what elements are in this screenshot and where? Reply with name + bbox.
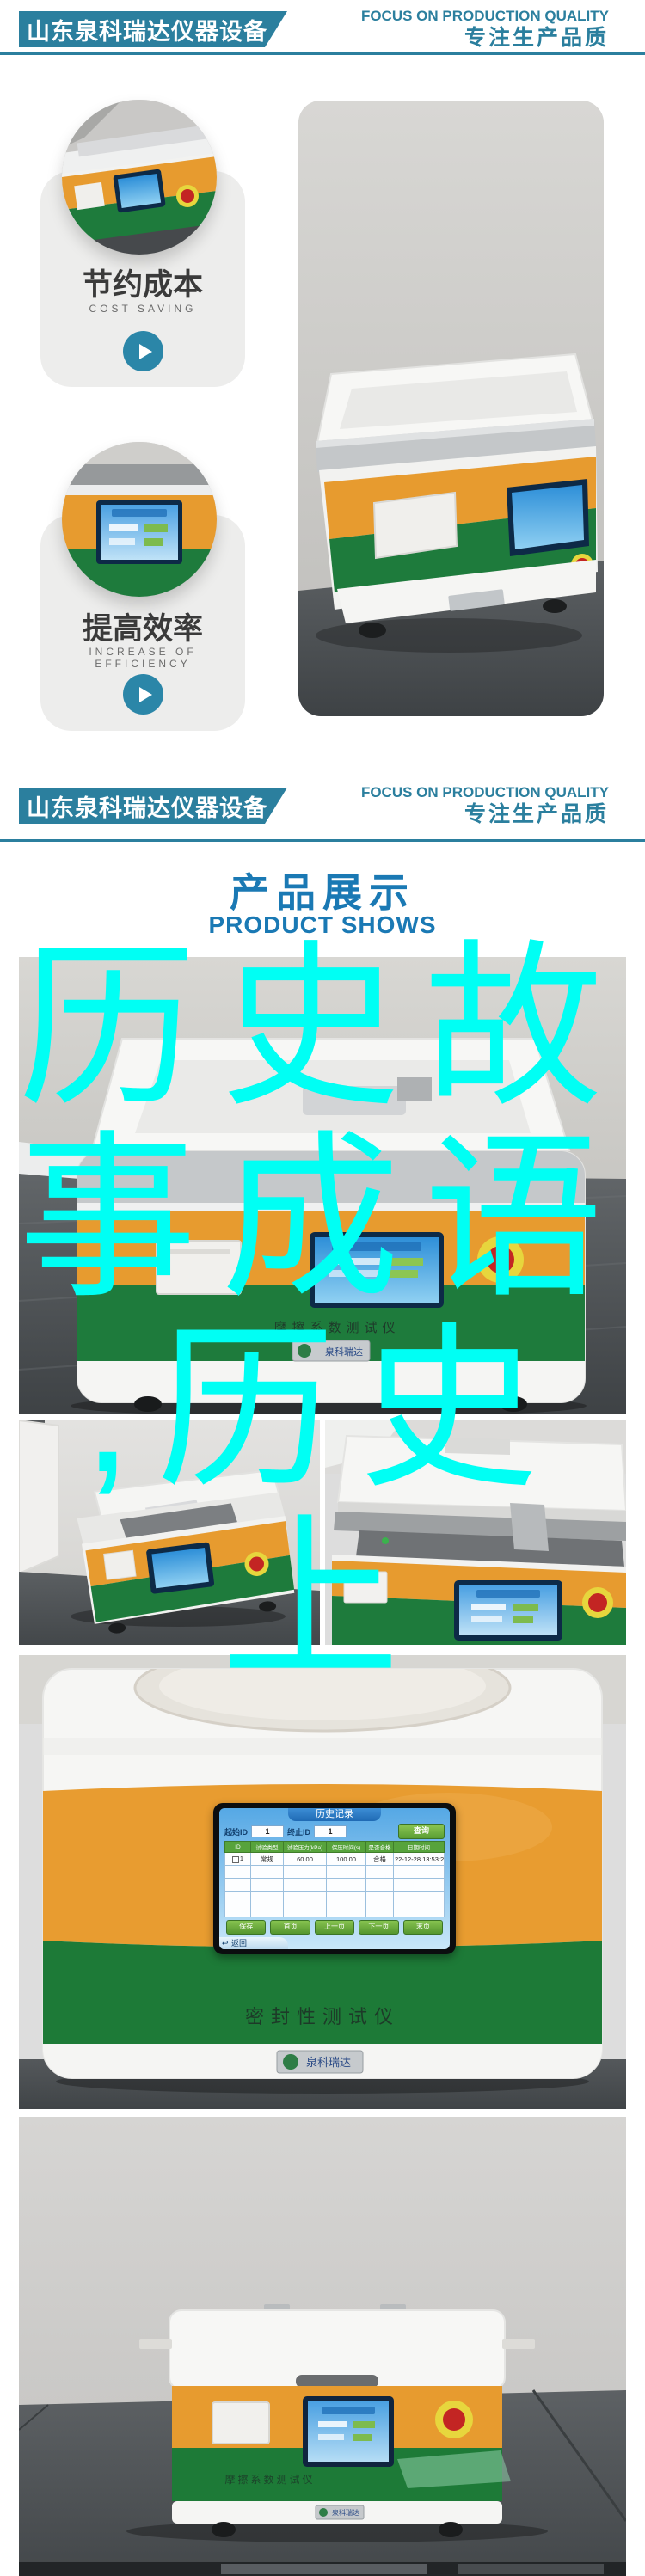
product-page: 山东泉科瑞达仪器设备 FOCUS ON PRODUCTION QUALITY 专… <box>0 0 645 2576</box>
product-photo-tester-on-table: 摩擦系数测试仪 泉科瑞达 <box>19 2117 626 2576</box>
tester-on-table-illustration: 摩擦系数测试仪 泉科瑞达 <box>19 2117 626 2576</box>
feature-subtitle: COST SAVING <box>40 303 245 315</box>
table-row-empty <box>225 1879 445 1892</box>
section-title: 产品展示 <box>0 862 645 918</box>
header-divider <box>0 839 645 842</box>
feature-title: 提高效率 <box>40 604 245 648</box>
header-slogan: FOCUS ON PRODUCTION QUALITY 专注生产品质 <box>361 8 609 51</box>
friction-tester-front-illustration: 摩擦系数测试仪 泉科瑞达 <box>19 957 626 1414</box>
header-slogan: FOCUS ON PRODUCTION QUALITY 专注生产品质 <box>361 784 609 827</box>
play-icon <box>139 687 152 702</box>
header-divider <box>0 52 645 55</box>
first-page-button: 首页 <box>270 1920 310 1935</box>
screen-title: 历史记录 <box>288 1808 381 1821</box>
friction-tester-photo-illustration: 摩擦系数测试仪 <box>298 101 604 716</box>
table-row-empty <box>225 1892 445 1904</box>
feature-thumb-cost <box>62 100 217 255</box>
play-icon <box>139 344 152 359</box>
section-subtitle: PRODUCT SHOWS <box>0 911 645 939</box>
product-photo-seal-tester: 密封性测试仪 泉科瑞达 历史记录 起始ID 1 终止ID 1 查询 ID <box>19 1655 626 2109</box>
product-photo-friction-tester: 摩擦系数测试仪 泉科瑞达 <box>19 957 626 1414</box>
product-photo-flat-tester <box>325 1420 626 1645</box>
device-touchscreen: 历史记录 起始ID 1 终止ID 1 查询 ID 试验类型 试验压力(kPa) … <box>213 1803 456 1954</box>
save-button: 保存 <box>226 1920 266 1935</box>
feature-subtitle: INCREASE OF EFFICIENCY <box>40 646 245 670</box>
col-header: 是否合格 <box>366 1842 394 1853</box>
slogan-zh: 专注生产品质 <box>361 25 609 51</box>
machine-closeup-illustration <box>62 100 217 255</box>
last-page-button: 末页 <box>403 1920 443 1935</box>
history-table: ID 试验类型 试验压力(kPa) 保压时间(s) 是否合格 日期时间 1 常规… <box>224 1841 445 1917</box>
start-id-input: 1 <box>251 1825 284 1837</box>
table-row-empty <box>225 1866 445 1879</box>
logo-plate: 泉科瑞达 <box>325 1346 363 1358</box>
col-header: 保压时间(s) <box>327 1842 366 1853</box>
play-button-cost[interactable] <box>123 331 163 371</box>
feature-thumb-efficiency <box>62 442 217 597</box>
prev-page-button: 上一页 <box>315 1920 354 1935</box>
logo-plate: 泉科瑞达 <box>306 2056 351 2069</box>
brand-name: 山东泉科瑞达仪器设备 <box>27 789 279 823</box>
back-button: 返回 <box>219 1937 288 1949</box>
col-header: 试验压力(kPa) <box>284 1842 327 1853</box>
slogan-en: FOCUS ON PRODUCTION QUALITY <box>361 8 609 25</box>
query-button: 查询 <box>398 1824 445 1839</box>
screen-nav-buttons: 保存 首页 上一页 下一页 末页 <box>226 1920 443 1935</box>
table-row-empty <box>225 1904 445 1917</box>
start-id-label: 起始ID <box>224 1826 248 1837</box>
end-id-label: 终止ID <box>287 1826 310 1837</box>
play-button-efficiency[interactable] <box>123 674 163 715</box>
col-header: 试验类型 <box>251 1842 284 1853</box>
angled-tester-illustration <box>19 1420 320 1645</box>
machine-label: 摩擦系数测试仪 <box>224 2473 315 2486</box>
brand-banner: 山东泉科瑞达仪器设备 <box>19 11 287 47</box>
next-page-button: 下一页 <box>359 1920 398 1935</box>
table-row: 1 常规 60.00 100.00 合格 22-12-28 13:53:25 <box>225 1853 445 1866</box>
col-header: 日期时间 <box>394 1842 445 1853</box>
machine-label: 密封性测试仪 <box>245 2006 400 2027</box>
hero-product-photo: 摩擦系数测试仪 <box>298 101 604 716</box>
slogan-zh: 专注生产品质 <box>361 801 609 827</box>
col-header: ID <box>225 1842 251 1853</box>
machine-screen-illustration <box>62 442 217 597</box>
touchscreen-ui: 历史记录 起始ID 1 终止ID 1 查询 ID 试验类型 试验压力(kPa) … <box>219 1808 450 1949</box>
feature-title: 节约成本 <box>40 261 245 304</box>
logo-plate: 泉科瑞达 <box>332 2508 359 2517</box>
row-checkbox <box>232 1856 239 1863</box>
end-id-input: 1 <box>314 1825 347 1837</box>
brand-name: 山东泉科瑞达仪器设备 <box>27 13 279 46</box>
product-photo-angled-tester <box>19 1420 320 1645</box>
machine-label: 摩擦系数测试仪 <box>273 1320 400 1335</box>
slogan-en: FOCUS ON PRODUCTION QUALITY <box>361 784 609 801</box>
brand-banner: 山东泉科瑞达仪器设备 <box>19 788 287 824</box>
flat-tester-illustration <box>325 1420 626 1645</box>
screen-query-form: 起始ID 1 终止ID 1 查询 <box>224 1824 445 1839</box>
